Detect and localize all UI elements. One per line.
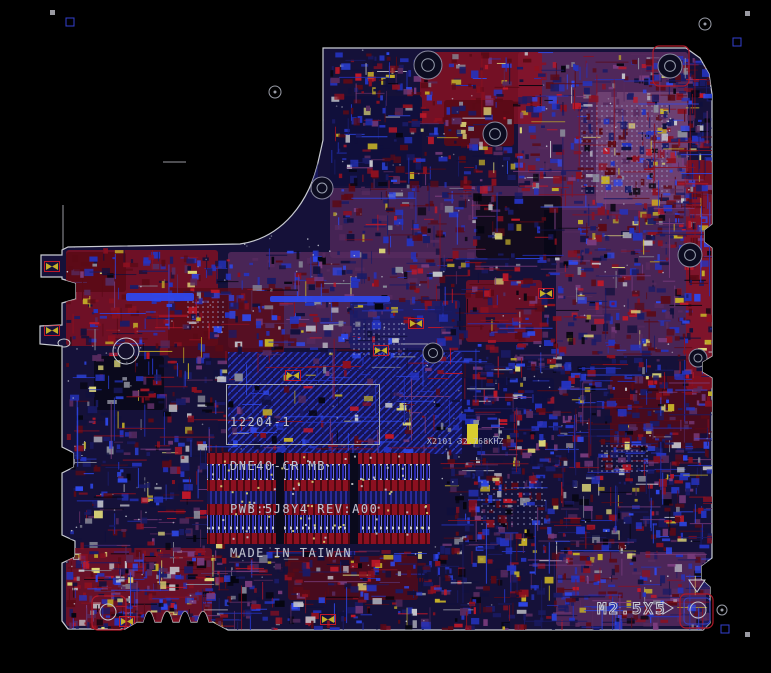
- board-model-name: DNE40-CR MB: [230, 459, 376, 474]
- screw-hole: [658, 54, 682, 78]
- screw-hole: [311, 177, 333, 199]
- screw-size-label: M2.5X5: [597, 599, 667, 618]
- screw-hole: [689, 349, 707, 367]
- screw-hole: [414, 51, 442, 79]
- alignment-square-icon: [50, 10, 55, 15]
- screw-hole: [483, 122, 507, 146]
- board-origin: MADE IN TAIWAN: [230, 546, 376, 561]
- board-part-number: 12204-1: [230, 415, 376, 430]
- alignment-square-icon: [745, 632, 750, 637]
- alignment-square-icon: [66, 18, 74, 26]
- blue-bus-trace: [270, 296, 390, 302]
- alignment-square-icon: [721, 625, 729, 633]
- pcb-board-canvas[interactable]: [0, 0, 771, 673]
- crystal-label: X2101 32.768KHZ: [427, 437, 504, 446]
- board-label-box: 12204-1 DNE40-CR MB PWB:5J8Y4 REV:A00 MA…: [226, 384, 380, 445]
- screw-hole: [678, 243, 702, 267]
- pcb-viewport: 12204-1 DNE40-CR MB PWB:5J8Y4 REV:A00 MA…: [0, 0, 771, 673]
- screw-hole: [423, 343, 443, 363]
- blue-bus-trace: [126, 293, 194, 301]
- board-pwb-rev: PWB:5J8Y4 REV:A00: [230, 502, 376, 517]
- alignment-square-icon: [733, 38, 741, 46]
- alignment-square-icon: [745, 11, 750, 16]
